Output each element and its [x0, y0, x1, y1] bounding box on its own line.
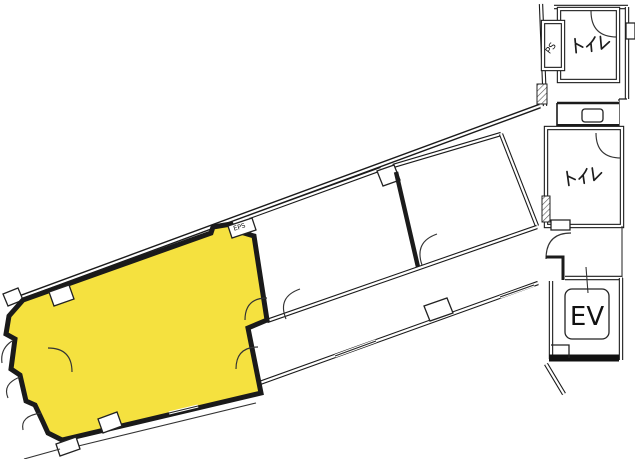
room2-right-wall-gap — [501, 134, 537, 226]
exterior-edge-line — [24, 449, 60, 459]
hatched-wall — [537, 84, 547, 104]
corridor-top-wall-gap — [267, 227, 537, 321]
right-wing: PS EV — [537, 4, 635, 394]
toilet-lower-text: トイレ — [564, 175, 600, 189]
room1-top-wall-gap — [249, 169, 381, 217]
column-notch — [424, 298, 453, 321]
window-segment-line — [335, 341, 376, 356]
door-arc-room2 — [420, 234, 437, 265]
hatched-wall — [542, 196, 550, 222]
balcony-door-arc — [7, 377, 21, 398]
lobby-wall — [546, 257, 563, 280]
door-arc-lobby — [546, 233, 571, 259]
elevator-label: EV — [570, 302, 604, 332]
exterior-wall-stub-gap — [546, 364, 564, 394]
floor-plan: EPS PS — [0, 0, 635, 459]
window-segment-line — [500, 285, 534, 297]
exterior-wall-top-gap — [16, 106, 540, 299]
corridor-bottom-wall-gap — [257, 283, 538, 384]
room-divider-wall — [396, 172, 418, 267]
floor-plan-page: EPS PS — [0, 0, 635, 459]
wall-stub — [626, 23, 635, 39]
wall-step — [551, 220, 570, 230]
washbasin — [582, 109, 603, 122]
toilet-upper-text: トイレ — [572, 41, 608, 55]
